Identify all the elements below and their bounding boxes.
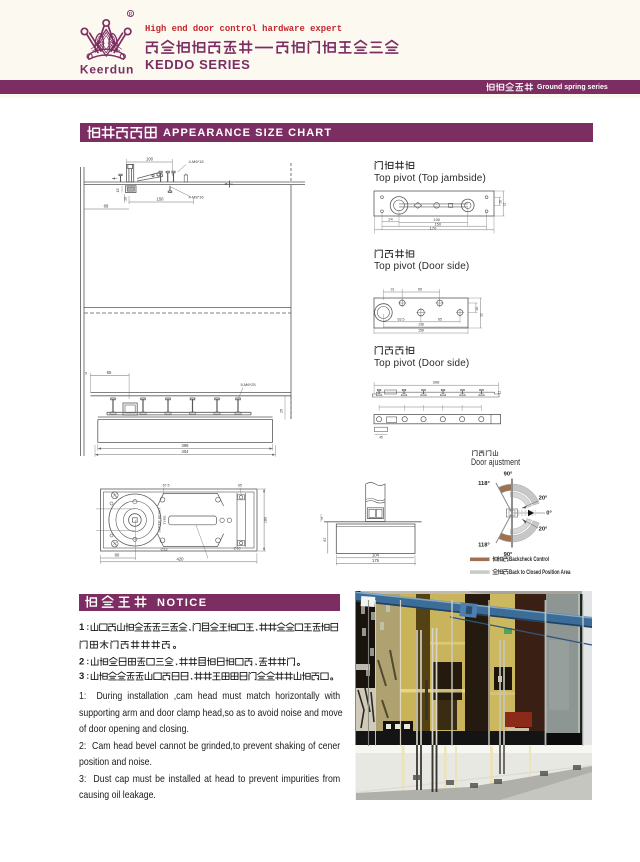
svg-text:118°: 118° [478,543,490,549]
svg-text:150: 150 [157,197,165,202]
svg-text:104: 104 [372,552,380,557]
svg-text:65: 65 [238,484,242,488]
svg-text:Keerdun: Keerdun [80,63,134,77]
svg-text:R: R [128,11,133,18]
svg-text:100: 100 [146,157,154,162]
svg-text:∅13: ∅13 [161,548,168,552]
svg-text:87: 87 [323,537,327,541]
svg-text:15: 15 [116,189,120,193]
svg-text:175: 175 [372,558,380,563]
svg-text:398: 398 [182,443,190,448]
svg-text:158: 158 [418,329,424,333]
svg-text:5: 5 [321,517,323,521]
svg-text:420: 420 [177,556,185,561]
svg-text:5-M6*25: 5-M6*25 [240,382,256,387]
svg-text:404: 404 [182,449,190,454]
svg-text:3: 3 [79,671,84,682]
svg-text:90°: 90° [504,472,513,478]
svg-text:68: 68 [104,204,109,209]
svg-text:65: 65 [418,288,422,292]
svg-text:31: 31 [391,288,395,292]
svg-text:2: 2 [79,657,84,668]
svg-text:∅10: ∅10 [234,547,241,551]
svg-text:24: 24 [388,216,393,221]
svg-text:20°: 20° [539,496,548,502]
svg-text:32: 32 [502,203,506,207]
svg-text:180: 180 [264,517,268,523]
svg-text:4-M8*16: 4-M8*16 [188,195,204,200]
svg-text:63.5: 63.5 [398,317,405,321]
svg-text:45: 45 [379,436,383,440]
svg-text:5: 5 [85,372,87,376]
svg-text:170: 170 [430,225,437,230]
svg-text:TYPE: TYPE [163,515,167,525]
svg-text:26: 26 [124,197,128,201]
svg-text:118°: 118° [478,481,490,487]
svg-text:18: 18 [475,307,479,311]
svg-text:20°: 20° [539,527,548,533]
svg-text:398: 398 [433,379,440,384]
svg-text:1: 1 [79,622,85,633]
svg-text:0°: 0° [546,511,552,517]
svg-text:65: 65 [107,370,112,375]
svg-text:67.5: 67.5 [163,484,170,488]
svg-text:4-M6*15: 4-M6*15 [188,159,204,164]
svg-text:12: 12 [498,391,502,395]
svg-text:32: 32 [480,313,484,317]
svg-text:25: 25 [280,409,284,413]
svg-text:SUPER HEAVY: SUPER HEAVY [157,507,161,533]
svg-text:65: 65 [438,317,442,321]
svg-text:80: 80 [115,553,120,558]
